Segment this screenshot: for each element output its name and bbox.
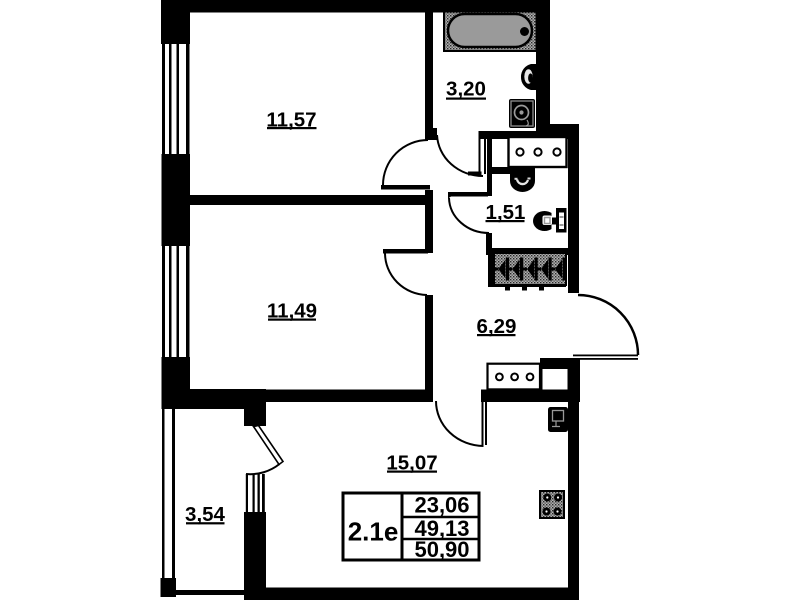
svg-text:50,90: 50,90 — [414, 537, 469, 562]
svg-text:23,06: 23,06 — [414, 493, 469, 518]
svg-text:3,20: 3,20 — [446, 78, 486, 101]
svg-text:2.1е: 2.1е — [348, 517, 399, 547]
